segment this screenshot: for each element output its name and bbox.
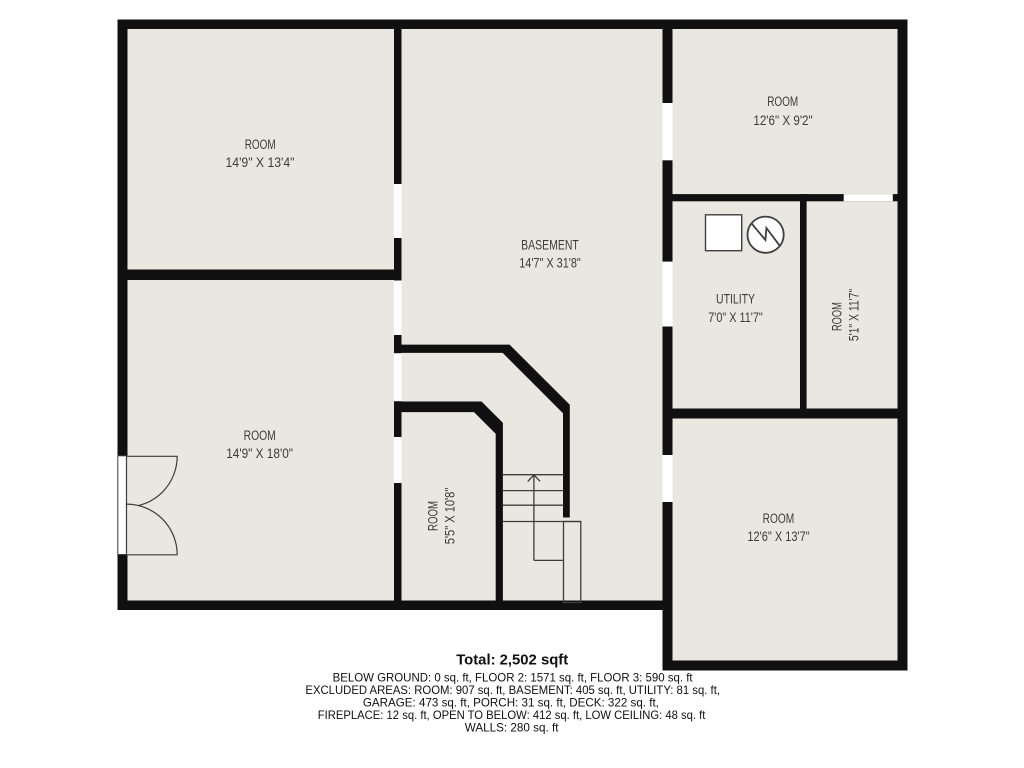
svg-text:ROOM: ROOM: [244, 428, 276, 443]
svg-text:14'7" X 31'8": 14'7" X 31'8": [519, 256, 581, 272]
svg-text:5'5" X 10'8": 5'5" X 10'8": [443, 488, 459, 545]
svg-text:ROOM: ROOM: [426, 501, 441, 531]
svg-text:ROOM: ROOM: [245, 137, 276, 152]
svg-text:14'9" X 18'0": 14'9" X 18'0": [226, 446, 293, 462]
svg-text:5'1" X 11'7": 5'1" X 11'7": [847, 289, 863, 341]
svg-text:Total: 2,502 sqft: Total: 2,502 sqft: [456, 652, 568, 669]
svg-text:WALLS: 280 sq. ft: WALLS: 280 sq. ft: [465, 721, 559, 735]
svg-text:ROOM: ROOM: [767, 94, 798, 109]
svg-text:UTILITY: UTILITY: [716, 292, 755, 307]
svg-text:ROOM: ROOM: [763, 511, 795, 526]
svg-text:14'9" X 13'4": 14'9" X 13'4": [226, 155, 295, 171]
svg-text:ROOM: ROOM: [829, 302, 844, 331]
svg-text:12'6" X 9'2": 12'6" X 9'2": [753, 113, 812, 129]
svg-text:BASEMENT: BASEMENT: [521, 238, 579, 253]
svg-text:12'6" X 13'7": 12'6" X 13'7": [747, 529, 809, 545]
svg-text:7'0" X 11'7": 7'0" X 11'7": [708, 310, 763, 326]
